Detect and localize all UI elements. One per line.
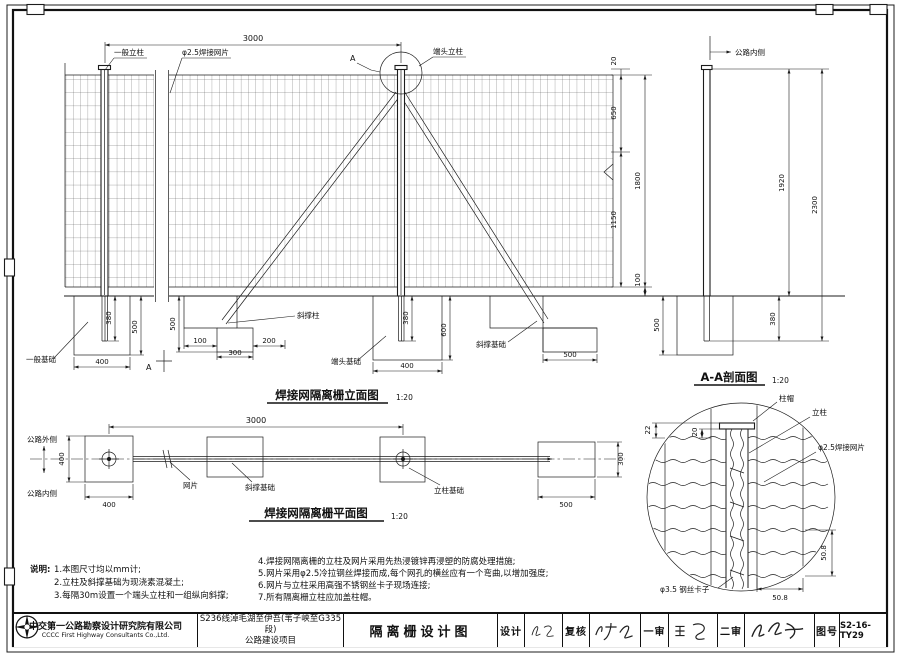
section-post-cap: [702, 66, 713, 70]
label-plan-mesh: 网片: [183, 480, 198, 490]
label-road-inside-plan: 公路内侧: [27, 488, 57, 498]
check-label-cell: 复核: [562, 614, 589, 647]
dim-gf-width: 400: [95, 358, 108, 366]
title-block: 中交第一公路勘察设计研究院有限公司 CCCC First Highway Con…: [14, 612, 886, 647]
plan-mesh-lines: [133, 457, 550, 462]
dim-gf-depth: 500: [131, 320, 139, 333]
dim-gf-embed: 380: [105, 311, 113, 324]
project-line2: 公路建设项目: [245, 636, 296, 647]
frame-tick-left-upper: [5, 259, 15, 276]
dim-section-embed: 380: [769, 312, 777, 325]
dim-plan-end-w: 500: [559, 501, 572, 509]
label-end-foundation: 端头基础: [331, 356, 361, 366]
number-label-cell: 图号: [814, 614, 839, 647]
dim-bf2-width: 500: [563, 351, 576, 359]
label-mesh: φ2.5焊接网片: [182, 47, 229, 57]
label-end-post: 端头立柱: [433, 46, 463, 56]
dim-section-above: 1920: [778, 174, 786, 192]
label-brace-post: 斜撑柱: [297, 310, 320, 320]
dim-upper: 650: [610, 106, 618, 119]
end-post-cap: [395, 66, 407, 70]
company-logo: [14, 614, 40, 640]
label-section-a: A: [146, 363, 152, 372]
plan-scale: 1:20: [391, 512, 408, 521]
elevation-scale: 1:20: [396, 393, 413, 402]
dim-plan-span: 3000: [246, 416, 266, 425]
company-cell: 中交第一公路勘察设计研究院有限公司 CCCC First Highway Con…: [14, 614, 197, 647]
dim-detail-h: 50.8: [772, 594, 788, 602]
drawing-number: S2-16-TY29: [840, 621, 886, 641]
label-plan-brace-foundation: 斜撑基础: [245, 482, 275, 492]
review1-signature: [670, 617, 716, 645]
check-signature: [591, 617, 639, 645]
dim-bf-c: 200: [262, 337, 275, 345]
elevation-view: 3000 20 650 1150 1800 100 380 500 400 50…: [26, 34, 845, 403]
section-scale: 1:20: [772, 376, 789, 385]
detail-mesh: [648, 404, 828, 590]
review2-label-cell: 二审: [717, 614, 744, 647]
dim-ef-embed: 380: [402, 311, 410, 324]
label-detail-post: 立柱: [812, 407, 827, 417]
design-signature: [526, 617, 562, 645]
dim-bf-depth: 500: [169, 317, 177, 330]
dim-plan-w: 400: [102, 501, 115, 509]
dim-ef-depth: 600: [440, 323, 448, 336]
label-plan-post-foundation: 立柱基础: [434, 485, 464, 495]
section-title: A-A剖面图: [700, 370, 757, 384]
elevation-title: 焊接网隔离栅立面图: [275, 388, 379, 402]
note-1: 1.本图尺寸均以mm计;: [54, 563, 141, 575]
project-line1: S236线淖毛湖至伊吾(苇子峡至G335段): [198, 614, 343, 636]
plan-brace-foundation: [207, 437, 263, 477]
dim-bf-a: 100: [193, 337, 206, 345]
drawing-sheet: 3000 20 650 1150 1800 100 380 500 400 50…: [0, 0, 900, 657]
note-3: 3.每隔30m设置一个端头立柱和一组纵向斜撑;: [54, 589, 229, 601]
company-name-en: CCCC First Highway Consultants Co.,Ltd.: [42, 632, 170, 639]
drawing-title-cell: 隔离栅设计图: [343, 614, 497, 647]
label-detail-a: A: [350, 54, 356, 63]
label-detail-cap: 柱帽: [779, 393, 794, 403]
dim-ef-width: 400: [400, 362, 413, 370]
frame-tick-top-corner: [870, 5, 887, 15]
design-label: 设计: [500, 623, 522, 638]
label-brace-foundation: 斜撑基础: [476, 339, 506, 349]
mesh-panel-left: [65, 75, 154, 287]
note-6: 6.网片与立柱采用高强不锈钢丝卡子现场连接;: [258, 579, 430, 591]
drawing-title: 隔离栅设计图: [369, 621, 471, 640]
plan-end-foundation: [538, 442, 595, 477]
review2-label: 二审: [720, 623, 742, 638]
detail-view: 22 20 50.8 50.8 柱帽 立柱 φ2.5焊接网片 φ3.5 钢丝卡子: [644, 393, 865, 602]
label-detail-clip: φ3.5 钢丝卡子: [660, 584, 710, 594]
section-foundation: [677, 296, 733, 355]
section-view: 公路内侧 500 380 1920 2300 A-A剖面图 1:20: [653, 36, 829, 385]
frame-tick-top-right: [816, 5, 833, 15]
section-post: [704, 69, 711, 296]
review2-signature: [747, 617, 813, 645]
label-road-inside-section: 公路内侧: [735, 47, 765, 57]
general-post-cap: [99, 66, 111, 70]
company-name-cn: 中交第一公路勘察设计研究院有限公司: [29, 622, 182, 632]
detail-post-cap: [720, 423, 755, 429]
plan-view: 公路外侧 公路内侧 400 3000 400 网片 斜撑基础 立柱基础 500: [27, 416, 625, 521]
dim-ground-gap: 100: [634, 273, 642, 286]
dim-mesh-height: 1800: [634, 172, 642, 190]
mesh-panel-right: [169, 75, 613, 287]
dim-plan-h: 400: [58, 452, 66, 465]
note-5: 5.网片采用φ2.5冷拉钢丝焊接而成,每个网孔的横丝应有一个弯曲,以增加强度;: [258, 567, 549, 579]
review1-label-cell: 一审: [640, 614, 668, 647]
dim-section-total: 2300: [811, 196, 819, 214]
label-detail-mesh: φ2.5焊接网片: [818, 442, 865, 452]
project-cell: S236线淖毛湖至伊吾(苇子峡至G335段) 公路建设项目: [197, 614, 343, 647]
drawing-number-label: 图号: [816, 623, 838, 638]
drawing-number-cell: S2-16-TY29: [839, 614, 886, 647]
note-7: 7.所有隔离栅立柱应加盖柱帽。: [258, 591, 377, 603]
check-signature-cell: [589, 614, 640, 647]
dim-cap: 20: [610, 57, 618, 66]
label-general-foundation: 一般基础: [26, 354, 56, 364]
dim-detail-22: 22: [644, 426, 652, 435]
notes-heading: 说明:: [30, 563, 50, 575]
dim-detail-v: 50.8: [820, 545, 828, 561]
label-general-post: 一般立柱: [114, 47, 144, 57]
elevation-height-dims: 20 650 1150 1800 100: [610, 57, 652, 296]
dim-plan-end-h: 300: [617, 452, 625, 465]
note-2: 2.立柱及斜撑基础为现浇素混凝土;: [54, 576, 184, 588]
notes-block: 说明: 1.本图尺寸均以mm计; 2.立柱及斜撑基础为现浇素混凝土; 3.每隔3…: [24, 550, 644, 610]
note-4: 4.焊接网隔离栅的立柱及网片采用先热浸镀锌再浸塑的防腐处理措施;: [258, 555, 515, 567]
review1-label: 一审: [644, 623, 666, 638]
dim-detail-20: 20: [691, 428, 699, 437]
section-cut-mark: [156, 350, 172, 372]
plan-title: 焊接网隔离栅平面图: [264, 506, 368, 520]
frame-tick-left-lower: [5, 568, 15, 585]
check-label: 复核: [565, 623, 587, 638]
dim-span: 3000: [243, 34, 263, 43]
frame-tick-top-left: [27, 5, 44, 15]
dim-bf-b: 300: [228, 349, 241, 357]
design-signature-cell: [524, 614, 562, 647]
brace-foundation-right: [490, 296, 597, 363]
dim-lower: 1150: [610, 211, 618, 229]
dim-section-depth: 500: [653, 318, 661, 331]
review2-signature-cell: [744, 614, 814, 647]
review1-signature-cell: [668, 614, 717, 647]
label-road-outside: 公路外侧: [27, 434, 57, 444]
design-label-cell: 设计: [497, 614, 524, 647]
